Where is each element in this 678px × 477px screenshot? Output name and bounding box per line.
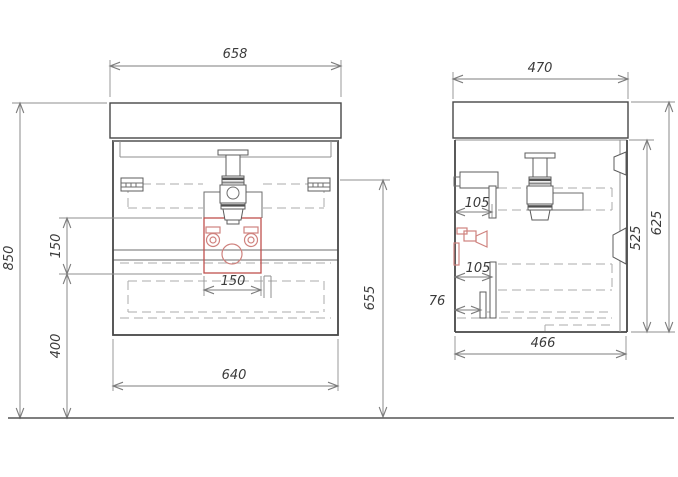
dim-label-625: 625 bbox=[650, 211, 665, 236]
side-handle-profile-lower bbox=[613, 228, 626, 264]
drain-hole bbox=[222, 244, 242, 264]
dim-label-150-width: 150 bbox=[221, 274, 246, 289]
siphon-trap-side bbox=[525, 153, 555, 220]
technical-drawing: 658 850 150 400 640 655 bbox=[0, 0, 678, 477]
dim-width-658: 658 bbox=[110, 47, 341, 97]
dim-label-400: 400 bbox=[49, 334, 64, 359]
valve-symbol-left bbox=[206, 227, 220, 247]
dim-width-150-cutout: 150 bbox=[204, 274, 261, 296]
dim-height-850: 850 bbox=[2, 103, 107, 418]
mounting-bracket-left bbox=[121, 178, 143, 191]
dim-label-850: 850 bbox=[2, 246, 17, 271]
valve-symbol-right bbox=[244, 227, 258, 247]
dim-label-105-lower: 105 bbox=[466, 261, 491, 276]
dim-label-76: 76 bbox=[429, 294, 446, 309]
dim-label-655: 655 bbox=[363, 286, 378, 311]
dim-width-640: 640 bbox=[113, 339, 338, 391]
side-view: 470 105 105 76 466 525 bbox=[429, 61, 675, 360]
siphon-trap-front bbox=[218, 150, 248, 224]
dim-height-400: 400 bbox=[49, 274, 67, 418]
front-step-notch bbox=[264, 276, 271, 298]
front-washbasin-top bbox=[110, 103, 341, 138]
dim-height-655: 655 bbox=[340, 180, 390, 417]
front-hidden-lines-lower bbox=[120, 263, 331, 318]
front-view: 658 850 150 400 640 655 bbox=[2, 47, 390, 418]
side-washbasin-top bbox=[453, 102, 628, 138]
dim-label-105-upper: 105 bbox=[465, 196, 490, 211]
dim-depth-470: 470 bbox=[453, 61, 628, 99]
dim-label-640: 640 bbox=[222, 368, 247, 383]
front-drawer-gap bbox=[113, 250, 338, 260]
dim-label-525: 525 bbox=[629, 226, 644, 251]
dim-label-658: 658 bbox=[223, 47, 248, 62]
mounting-bracket-right bbox=[308, 178, 330, 191]
dim-offset-105-lower: 105 bbox=[455, 261, 492, 277]
dim-label-466: 466 bbox=[531, 336, 556, 351]
side-handle-profile-upper bbox=[614, 152, 626, 175]
plumbing-cutout-highlight bbox=[204, 218, 261, 273]
dim-depth-466: 466 bbox=[455, 336, 626, 360]
dim-height-625: 625 bbox=[631, 102, 675, 332]
valve-symbol-side bbox=[454, 228, 487, 265]
dim-label-150-height: 150 bbox=[49, 234, 64, 259]
dim-offset-105-upper: 105 bbox=[455, 196, 492, 218]
dim-label-470: 470 bbox=[528, 61, 553, 76]
dim-height-150: 150 bbox=[49, 218, 202, 274]
drawing-canvas: 658 850 150 400 640 655 bbox=[0, 0, 678, 477]
